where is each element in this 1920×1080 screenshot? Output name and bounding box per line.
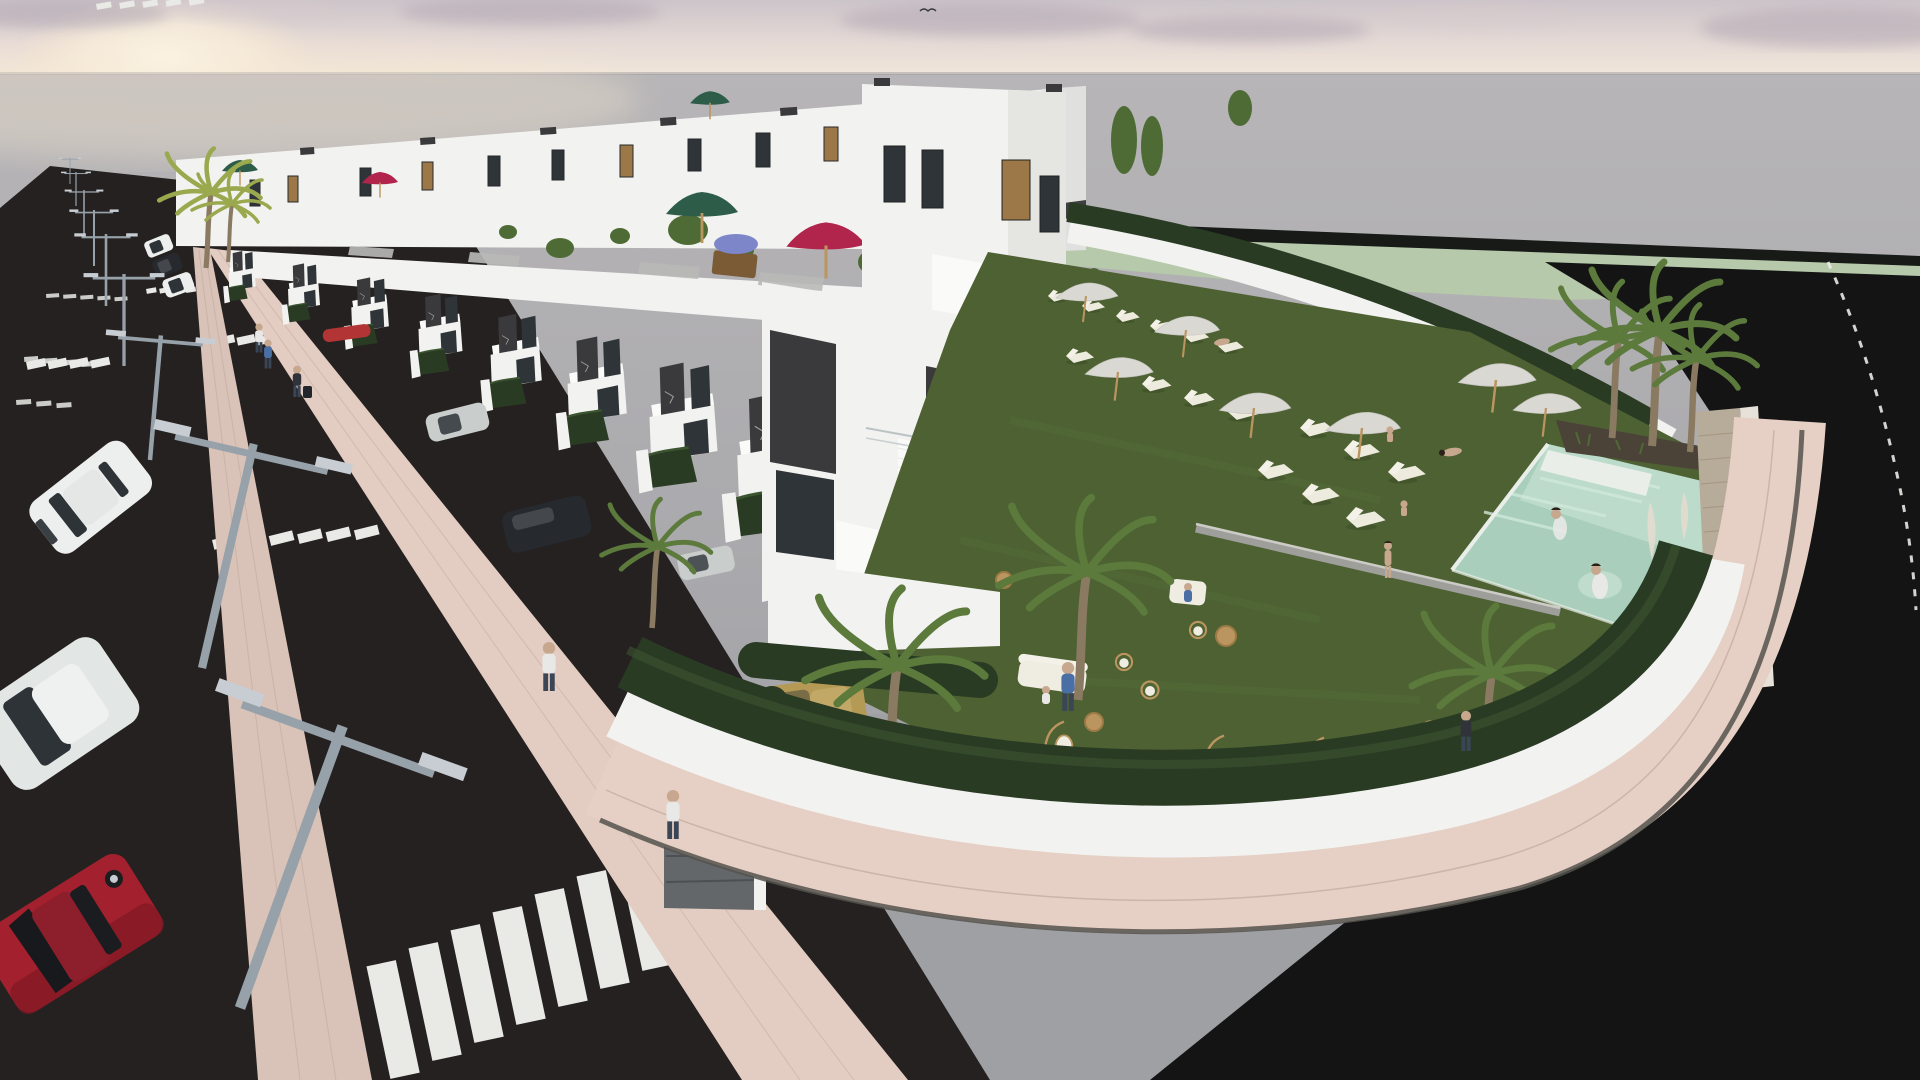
cypress-tree (1141, 116, 1163, 176)
luggage (303, 386, 312, 398)
architectural-render (0, 0, 1920, 1080)
blue-flowers (714, 234, 758, 254)
sitting-person (1042, 686, 1050, 704)
roof-tree (1228, 90, 1252, 126)
sitting-person (1184, 583, 1192, 602)
cypress-tree (1111, 106, 1137, 174)
render-viewport (0, 0, 1920, 1080)
flower-planter-box (711, 250, 757, 278)
